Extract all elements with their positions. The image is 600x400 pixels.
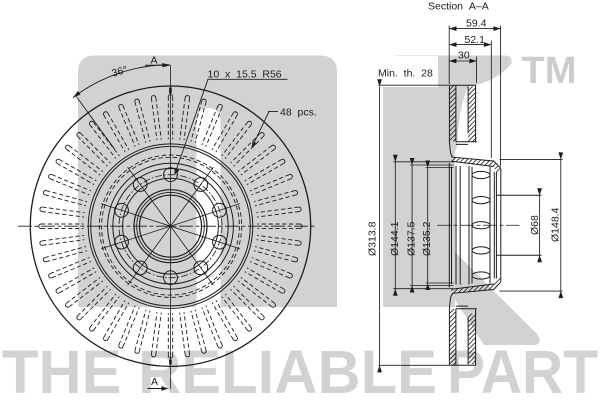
svg-text:Section A–A: Section A–A <box>428 1 489 13</box>
svg-text:30: 30 <box>458 50 470 62</box>
svg-text:52.1: 52.1 <box>465 34 486 46</box>
svg-text:10 x 15.5 R56: 10 x 15.5 R56 <box>208 68 282 80</box>
svg-text:Ø137.5: Ø137.5 <box>406 221 418 256</box>
svg-text:PART: PART <box>447 338 598 400</box>
svg-text:A: A <box>151 54 158 66</box>
svg-text:Ø148.4: Ø148.4 <box>550 207 562 242</box>
svg-text:48 pcs.: 48 pcs. <box>280 107 317 119</box>
svg-text:59.4: 59.4 <box>466 18 487 30</box>
svg-text:TM: TM <box>522 50 577 92</box>
svg-text:Ø144.1: Ø144.1 <box>389 221 401 256</box>
svg-text:THE RELIABLE: THE RELIABLE <box>2 338 437 400</box>
svg-text:Ø135.2: Ø135.2 <box>421 221 433 256</box>
svg-text:Ø68: Ø68 <box>529 215 541 235</box>
svg-text:Ø313.8: Ø313.8 <box>366 221 378 256</box>
svg-text:Min. th. 28: Min. th. 28 <box>378 68 433 80</box>
svg-text:A: A <box>151 376 158 388</box>
